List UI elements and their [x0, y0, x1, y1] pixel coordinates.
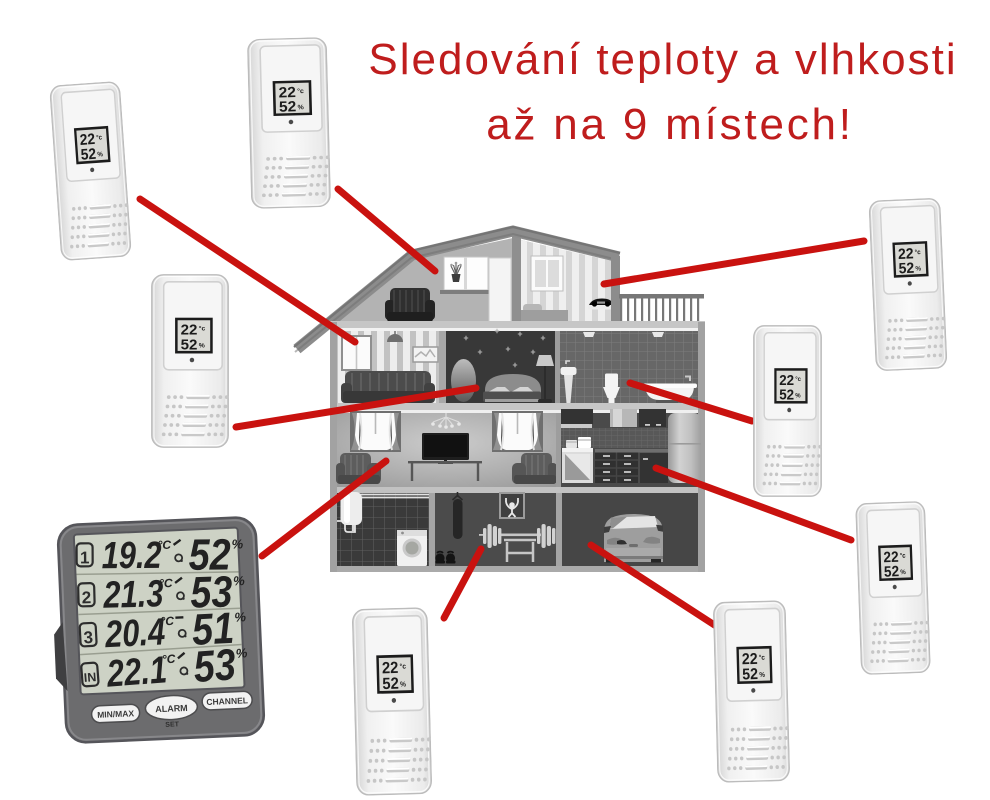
svg-text:%: % [235, 645, 248, 661]
svg-text:3: 3 [83, 628, 93, 647]
svg-text:2: 2 [81, 588, 91, 607]
svg-text:%: % [234, 609, 247, 625]
svg-text:ALARM: ALARM [155, 703, 188, 714]
svg-text:°C: °C [160, 614, 174, 629]
svg-text:MIN/MAX: MIN/MAX [97, 708, 135, 720]
svg-text:°C: °C [161, 652, 176, 667]
svg-text:19.2: 19.2 [102, 535, 162, 577]
svg-text:22.1: 22.1 [105, 649, 169, 695]
svg-text:°C: °C [158, 538, 172, 552]
svg-text:1: 1 [80, 548, 90, 567]
svg-text:IN: IN [83, 670, 97, 685]
svg-text:°C: °C [159, 576, 173, 590]
svg-text:%: % [232, 536, 244, 551]
svg-text:%: % [233, 573, 245, 588]
svg-text:CHANNEL: CHANNEL [206, 695, 248, 707]
svg-text:21.3: 21.3 [102, 573, 164, 617]
svg-text:53: 53 [192, 640, 238, 692]
svg-text:SET: SET [165, 721, 180, 729]
